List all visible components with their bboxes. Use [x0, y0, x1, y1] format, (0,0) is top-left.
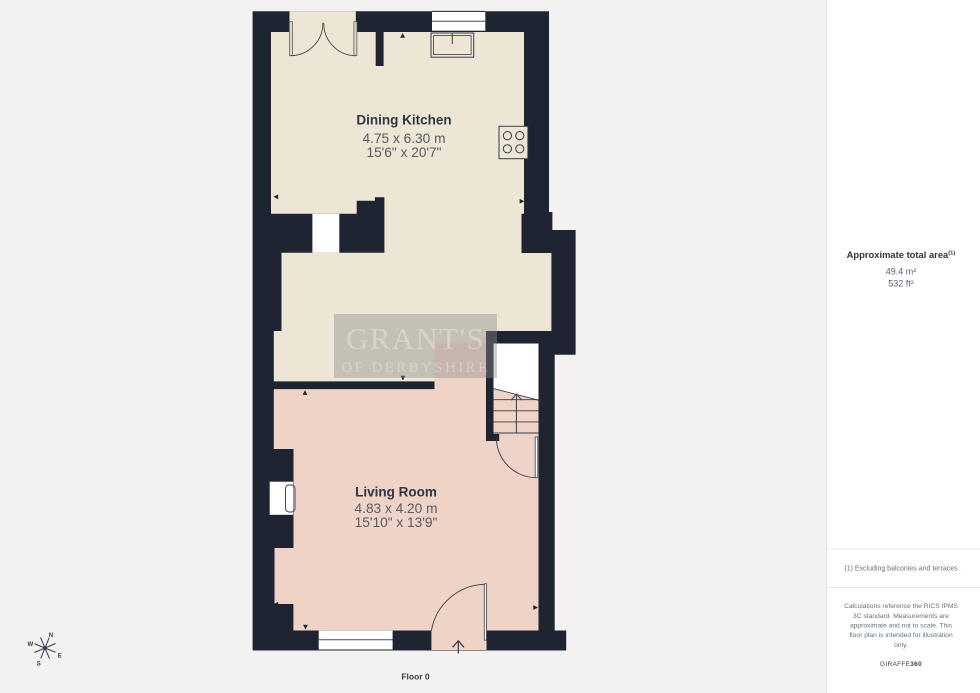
svg-text:N: N — [49, 633, 53, 639]
svg-text:only.: only. — [894, 642, 908, 649]
svg-text:15'6" x 20'7": 15'6" x 20'7" — [366, 145, 441, 160]
svg-text:3C standard. Measurements are: 3C standard. Measurements are — [853, 613, 949, 620]
svg-text:Approximate total area(1): Approximate total area(1) — [847, 249, 956, 260]
svg-text:OF DERBYSHIRE: OF DERBYSHIRE — [341, 360, 489, 376]
svg-text:532 ft²: 532 ft² — [888, 279, 914, 289]
svg-text:GRANT'S: GRANT'S — [346, 321, 485, 356]
svg-text:4.83 x 4.20 m: 4.83 x 4.20 m — [355, 501, 438, 516]
svg-text:S: S — [37, 662, 41, 668]
svg-text:Floor 0: Floor 0 — [401, 671, 430, 681]
svg-text:Dining Kitchen: Dining Kitchen — [356, 112, 451, 127]
svg-text:Calculations reference the RIC: Calculations reference the RICS IPMS — [844, 603, 958, 610]
svg-text:15'10" x 13'9": 15'10" x 13'9" — [355, 515, 438, 530]
svg-text:Living Room: Living Room — [355, 485, 437, 500]
svg-text:(1) Excluding balconies and te: (1) Excluding balconies and terraces — [844, 566, 958, 573]
svg-text:4.75 x 6.30 m: 4.75 x 6.30 m — [363, 131, 446, 146]
svg-text:GIRAFFE360: GIRAFFE360 — [880, 661, 922, 668]
svg-text:floor plan is intended for ill: floor plan is intended for illustration — [849, 632, 953, 639]
svg-text:E: E — [58, 654, 62, 660]
svg-text:approximate and not to scale.: approximate and not to scale. This — [850, 623, 953, 630]
svg-text:W: W — [27, 642, 33, 648]
svg-text:49.4 m²: 49.4 m² — [886, 266, 917, 276]
